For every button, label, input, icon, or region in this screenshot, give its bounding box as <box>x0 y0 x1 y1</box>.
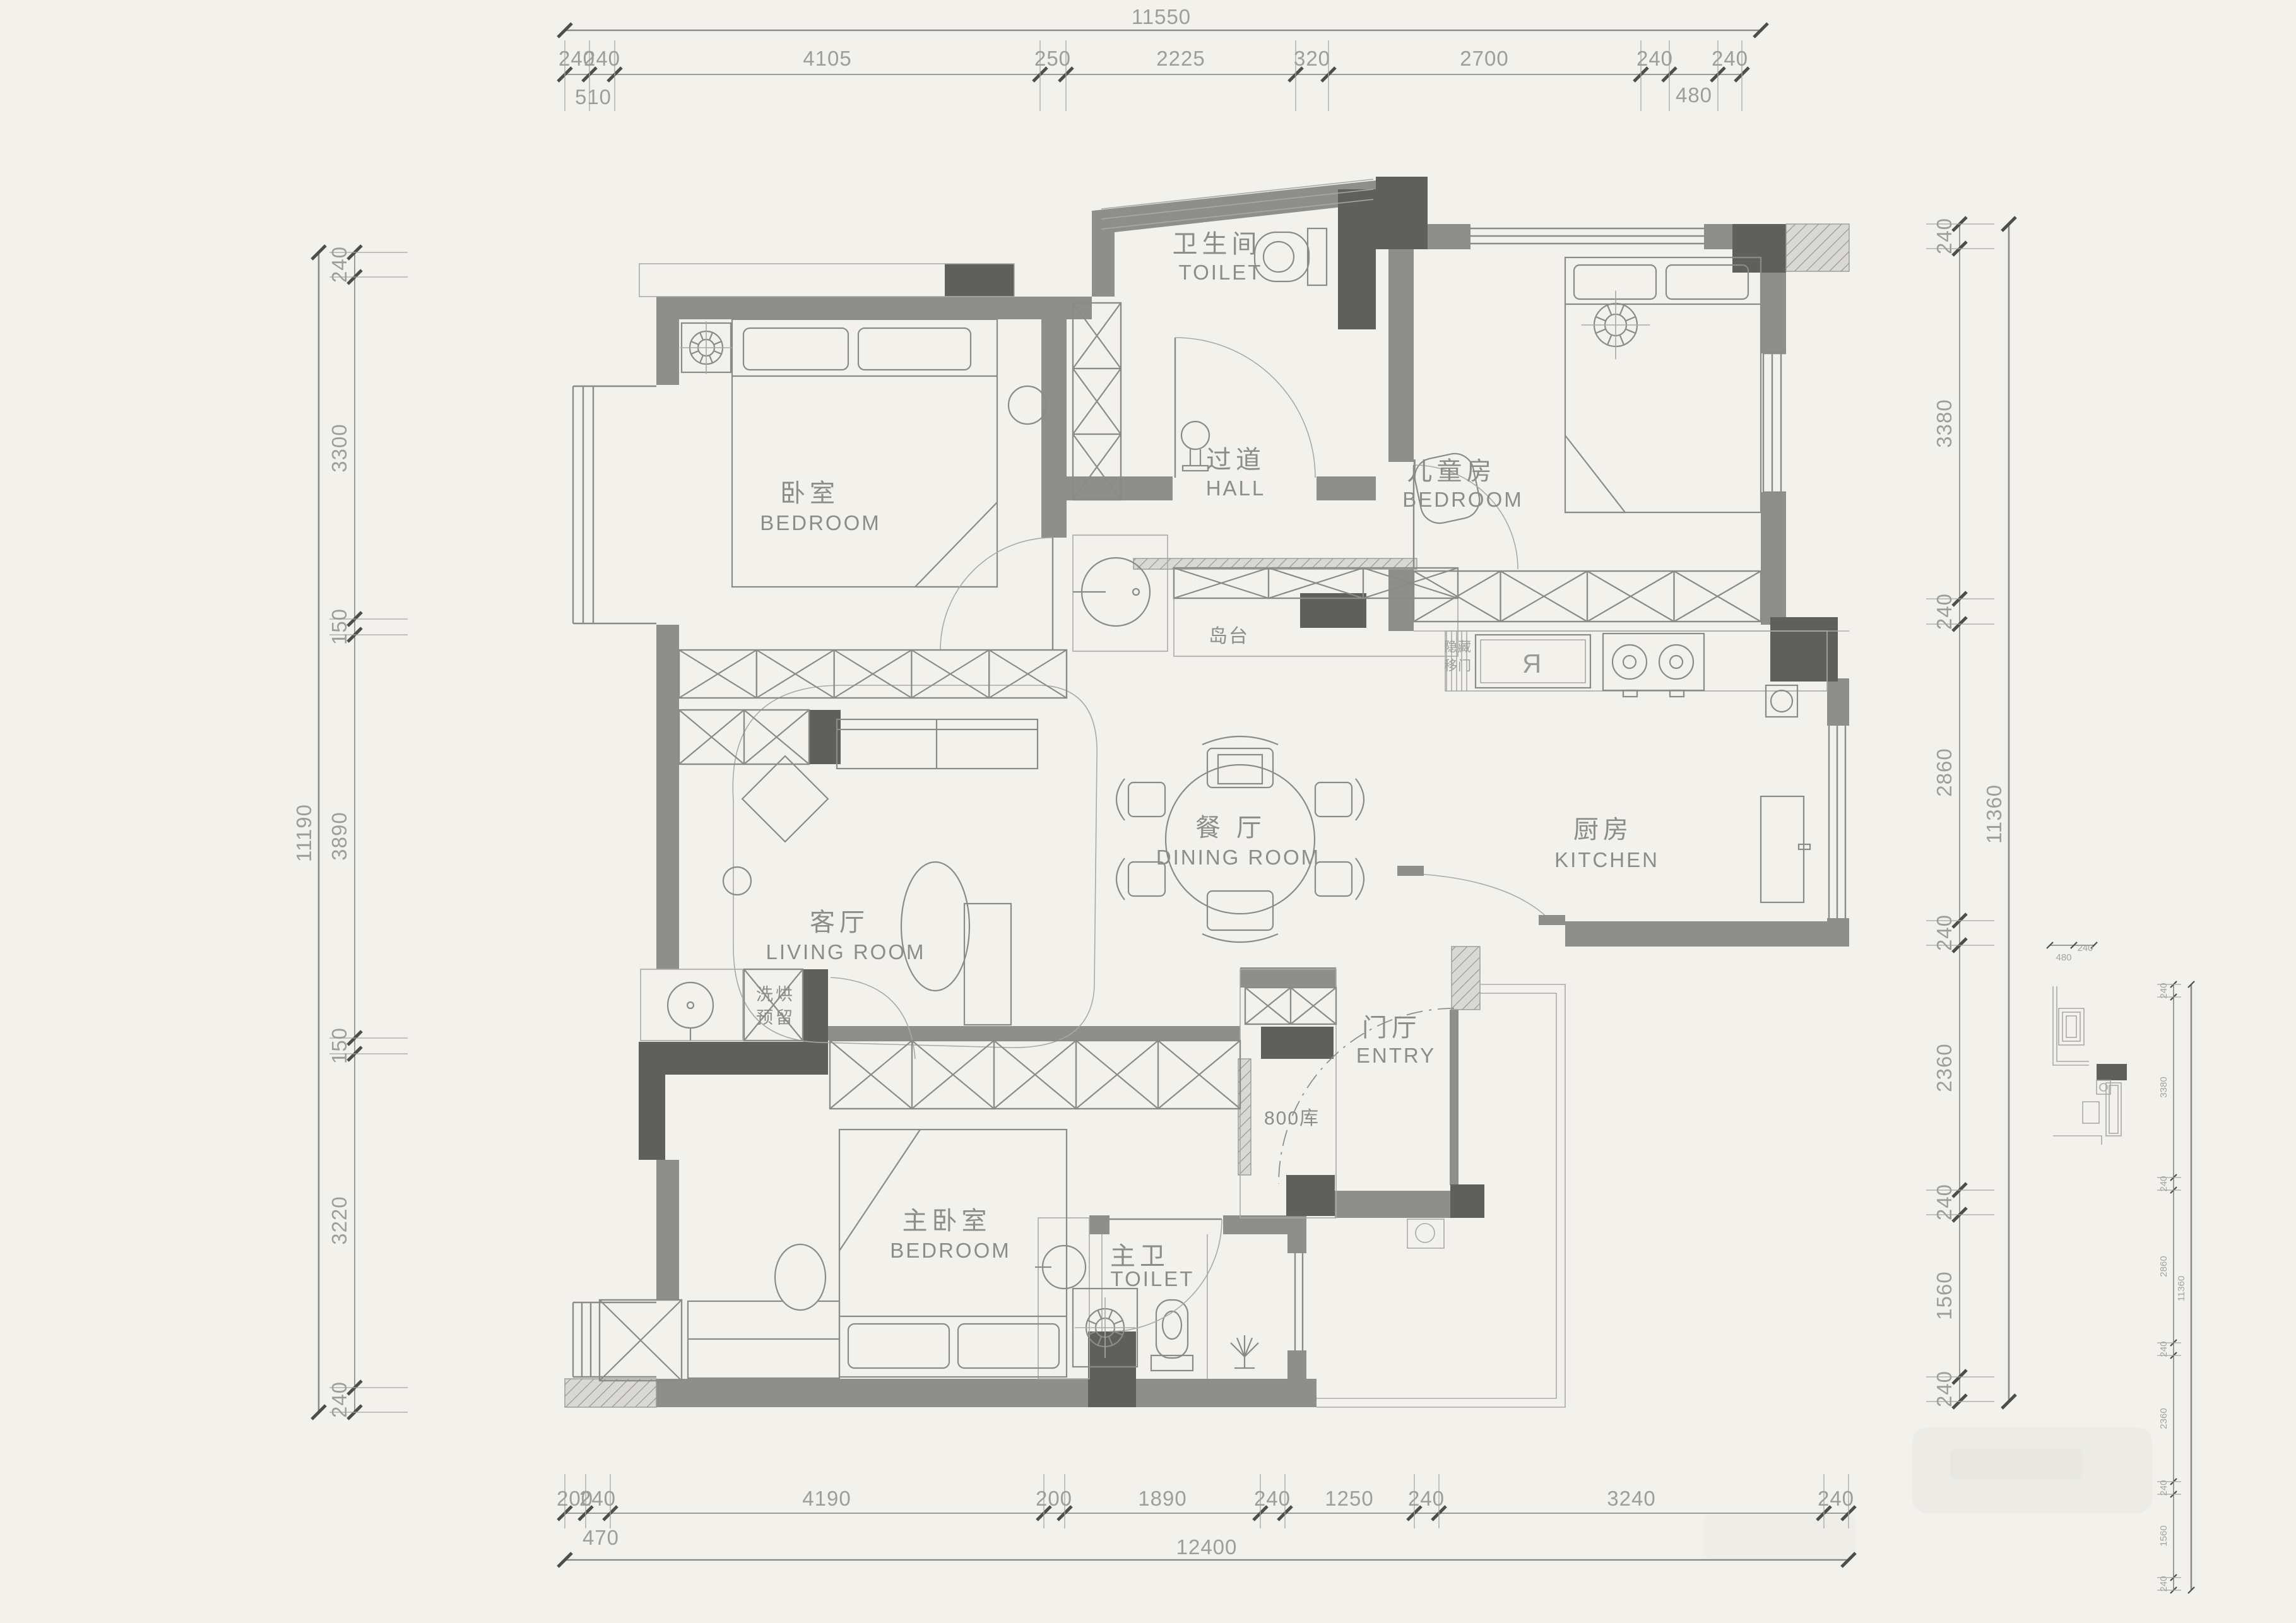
fan-spoke <box>1626 317 1636 321</box>
dim-label-bottom-3: 200 <box>1036 1487 1072 1510</box>
mini-plan-dark-wall <box>2097 1064 2127 1080</box>
stove <box>1603 634 1704 697</box>
fan-spoke <box>1596 317 1606 321</box>
dim-label-bottom-8: 3240 <box>1607 1487 1655 1510</box>
fan-spoke <box>691 351 699 354</box>
label-bedroom-top-left-zh: 卧室 <box>780 480 839 507</box>
dim-label-top-3: 250 <box>1034 47 1071 70</box>
dim-label-bottom-9: 240 <box>1818 1487 1854 1510</box>
label-kitchen-zh: 厨房 <box>1573 816 1633 844</box>
dim-overall-left: 11190 <box>292 804 316 862</box>
dim-label-bottom-5: 240 <box>1254 1487 1291 1510</box>
label-kids-en: BEDROOM <box>1402 488 1524 511</box>
dim-overall-mini_right: 11360 <box>2176 1276 2187 1302</box>
watermark <box>1704 1427 2152 1559</box>
fridge-icon: Я <box>1522 649 1541 678</box>
fan-spoke <box>714 351 721 354</box>
dim-label-top-1: 240 <box>584 47 620 70</box>
dim-label-mini_right-0: 240 <box>2158 983 2169 998</box>
fan-spoke <box>1596 329 1606 334</box>
dim-label-bottom-7: 240 <box>1408 1487 1445 1510</box>
label-living-zh: 客厅 <box>810 909 869 936</box>
dim-label-mini_right-1: 3380 <box>2158 1077 2169 1097</box>
dim-label-bottom-1: 240 <box>579 1487 616 1510</box>
label-kids-zh: 儿童房 <box>1407 457 1496 485</box>
mini-plan-wall <box>2053 1136 2102 1145</box>
label-storage-800: 800库 <box>1264 1108 1320 1129</box>
dim-overall-top: 11550 <box>1132 5 1191 28</box>
kitchen-cabinet <box>1761 796 1804 902</box>
dim-label-left-2: 150 <box>328 608 351 645</box>
floorplan-drawing: 卧室 BEDROOM 卫生间 TOILET 过道 HALL 儿童房 BEDROO… <box>0 0 2296 1623</box>
label-hall-zh: 过道 <box>1206 446 1265 474</box>
dim-label-mini_right-3: 2860 <box>2158 1256 2169 1277</box>
fan-spoke <box>1626 329 1636 334</box>
dim-label-mini_right-8: 240 <box>2158 1576 2169 1591</box>
door-master-suite <box>831 977 915 1059</box>
mini-plan-window <box>2062 1012 2080 1041</box>
dim-label-left-1: 3300 <box>328 423 351 472</box>
dim-label-right-1: 3380 <box>1932 399 1956 447</box>
dim-sub-top-0: 510 <box>575 85 612 109</box>
dim-sub-mini-480: 480 <box>2056 952 2071 963</box>
fan-spoke <box>709 355 713 363</box>
label-entry-zh: 门厅 <box>1362 1014 1421 1042</box>
dim-label-top-4: 2225 <box>1156 47 1205 70</box>
dim-label-mini_right-4: 240 <box>2158 1341 2169 1357</box>
entry-step <box>1407 1219 1444 1248</box>
fan-spoke <box>1098 1310 1102 1319</box>
label-dining-zh: 餐 厅 <box>1195 814 1266 842</box>
dim-label-top-5: 320 <box>1294 47 1330 70</box>
fan-spoke <box>714 341 721 345</box>
label-toilet-top-zh: 卫生间 <box>1173 230 1262 258</box>
dim-label-left-5: 3220 <box>328 1196 351 1244</box>
label-master-toilet-zh: 主卫 <box>1110 1242 1169 1270</box>
dim-label-bottom-2: 4190 <box>802 1487 851 1510</box>
dim-label-right-3: 2860 <box>1932 748 1956 796</box>
label-living-en: LIVING ROOM <box>766 940 925 964</box>
dim-label-mini_right-7: 1560 <box>2158 1525 2169 1546</box>
dim-label-right-6: 240 <box>1932 1184 1956 1220</box>
dim-label-mini_right-6: 240 <box>2158 1480 2169 1496</box>
dim-label-right-7: 1560 <box>1932 1271 1956 1319</box>
dim-label-right-8: 240 <box>1932 1371 1956 1407</box>
dim-label-left-0: 240 <box>328 246 351 283</box>
label-entry-en: ENTRY <box>1356 1044 1436 1067</box>
mini-plan-furniture <box>2083 1102 2099 1123</box>
floorplan-page: 卧室 BEDROOM 卫生间 TOILET 过道 HALL 儿童房 BEDROO… <box>0 0 2296 1623</box>
dim-sub-top-1: 480 <box>1676 83 1712 107</box>
fan-spoke <box>709 333 713 340</box>
fan-spoke <box>691 341 699 345</box>
label-hall-en: HALL <box>1206 476 1266 500</box>
bed-top-left <box>682 319 1046 587</box>
label-kitchen-en: KITCHEN <box>1554 848 1659 871</box>
label-master-bedroom-zh: 主卧室 <box>902 1207 991 1235</box>
fan-spoke <box>1607 335 1612 345</box>
bed-kids <box>1411 257 1761 527</box>
label-hidden-door-2: 移门 <box>1444 659 1472 673</box>
floor-drain-icon <box>1231 1335 1258 1368</box>
dim-sub-mini-240: 240 <box>2077 943 2093 953</box>
room-labels: 卧室 BEDROOM 卫生间 TOILET 过道 HALL 儿童房 BEDROO… <box>760 230 1659 1290</box>
furniture <box>668 228 1810 1378</box>
fan-spoke <box>700 355 703 363</box>
mini-plan-window <box>2066 1016 2076 1037</box>
fan-spoke <box>1109 1310 1113 1319</box>
dim-sub-bottom-0: 470 <box>583 1526 619 1549</box>
fan-spoke <box>1620 305 1624 316</box>
fan-spoke <box>1620 335 1624 345</box>
dim-label-left-4: 150 <box>328 1027 351 1064</box>
dim-label-bottom-6: 1250 <box>1325 1487 1373 1510</box>
dim-label-top-6: 2700 <box>1460 47 1508 70</box>
label-island: 岛台 <box>1209 626 1249 647</box>
dim-overall-bottom: 12400 <box>1176 1535 1238 1559</box>
laundry-area <box>668 983 713 1041</box>
dim-label-top-8: 240 <box>1712 47 1748 70</box>
fan-spoke <box>1607 305 1612 316</box>
label-bedroom-top-left-en: BEDROOM <box>760 511 881 534</box>
dim-label-top-2: 4105 <box>803 47 851 70</box>
door-kitchen-sliding <box>1397 866 1565 925</box>
dim-label-right-0: 240 <box>1932 218 1956 254</box>
label-toilet-top-en: TOILET <box>1179 261 1263 284</box>
dim-label-right-2: 240 <box>1932 593 1956 630</box>
mini-plan-window2 <box>2106 1083 2121 1136</box>
dim-label-bottom-4: 1890 <box>1138 1487 1186 1510</box>
fan-spoke <box>700 333 703 340</box>
dim-overall-right: 11360 <box>1982 784 2006 844</box>
label-laundry-1: 洗烘 <box>756 985 795 1004</box>
dim-label-mini_right-2: 240 <box>2158 1176 2169 1191</box>
dim-label-left-6: 240 <box>328 1381 351 1418</box>
label-hidden-door-1: 隐藏 <box>1444 640 1472 654</box>
dim-label-left-3: 3890 <box>328 811 351 860</box>
dim-label-right-5: 2360 <box>1932 1043 1956 1092</box>
dim-label-top-7: 240 <box>1636 47 1673 70</box>
label-master-bedroom-en: BEDROOM <box>890 1239 1011 1262</box>
dim-label-right-4: 240 <box>1932 914 1956 951</box>
fan-spoke <box>1114 1321 1123 1325</box>
label-master-toilet-en: TOILET <box>1111 1267 1195 1290</box>
dim-label-mini_right-5: 2360 <box>2158 1408 2169 1429</box>
kitchen-sink <box>1766 685 1797 717</box>
label-dining-en: DINING ROOM <box>1156 846 1320 869</box>
